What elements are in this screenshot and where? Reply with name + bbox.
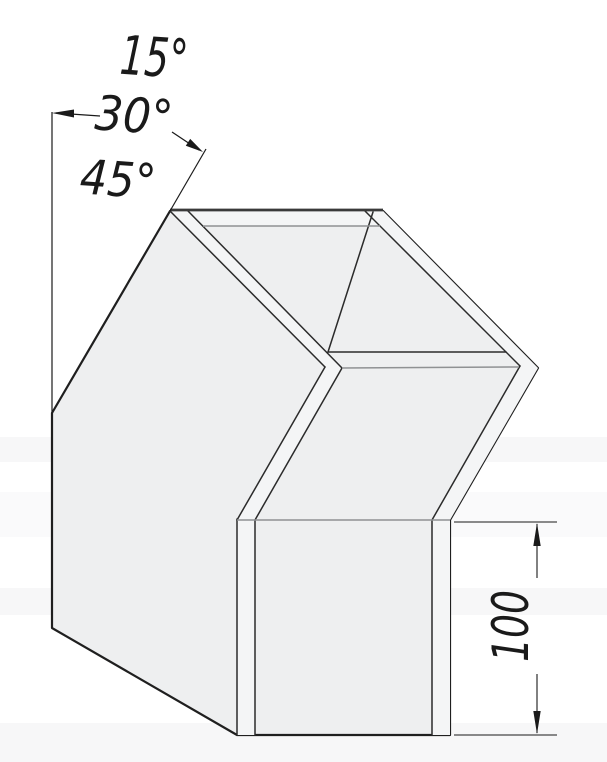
- left-strip-band: [237, 520, 255, 735]
- angle-label-45: 45°: [78, 149, 158, 210]
- top-lip-band: [170, 211, 383, 226]
- left-dimension-arrowhead-icon: [52, 110, 74, 118]
- right-dimension-arrowhead-icon: [186, 139, 203, 152]
- opening-outer-bottom-edge: [342, 367, 519, 368]
- elbow-duct-drawing: 15° 30° 45° 100: [0, 0, 607, 762]
- right-strip-band: [432, 520, 450, 735]
- angled-extension-line: [170, 149, 206, 211]
- height-dimension-label: 100: [482, 590, 540, 662]
- angle-label-15: 15°: [118, 24, 190, 92]
- drawing-canvas: 15° 30° 45° 100: [0, 0, 607, 762]
- angle-label-30: 30°: [93, 85, 175, 146]
